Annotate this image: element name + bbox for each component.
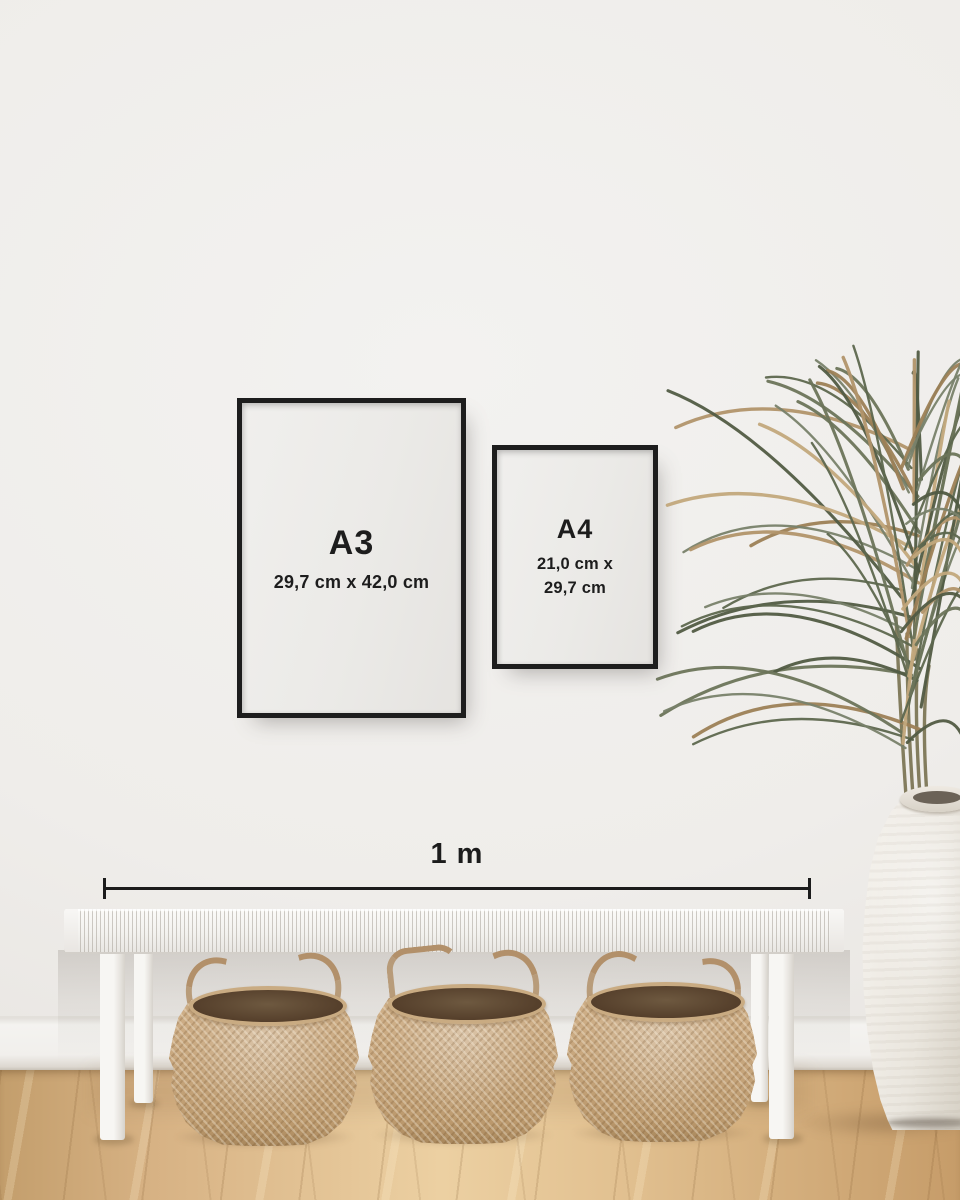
a3-size-label: A3 xyxy=(329,524,374,563)
bench-leg-front-right xyxy=(769,950,794,1139)
basket-rim xyxy=(189,986,347,1026)
ruler-line xyxy=(104,887,810,890)
ruler-label: 1 m xyxy=(357,838,557,871)
vase-opening xyxy=(913,791,960,804)
basket-rim xyxy=(388,984,546,1024)
poster-frame-a3-mat: A3 29,7 cm x 42,0 cm xyxy=(242,403,461,713)
ruler-endcap-right xyxy=(808,878,811,899)
palm-plant xyxy=(600,318,960,818)
seagrass-basket-left xyxy=(164,948,364,1144)
vase-body xyxy=(860,798,960,1130)
a3-dimensions-label: 29,7 cm x 42,0 cm xyxy=(274,572,430,593)
poster-frame-a3: A3 29,7 cm x 42,0 cm xyxy=(237,398,466,718)
size-guide-room-scene: A3 29,7 cm x 42,0 cm A4 21,0 cm x 29,7 c… xyxy=(0,0,960,1200)
palm-fronds xyxy=(657,346,960,796)
seagrass-basket-right xyxy=(562,944,762,1140)
bench-leg-front-left xyxy=(100,950,125,1140)
a4-dimensions-line2: 29,7 cm xyxy=(544,579,606,597)
ruler-endcap-left xyxy=(103,878,106,899)
white-vase xyxy=(860,786,960,1130)
bench-leg-back-left xyxy=(134,950,153,1103)
seagrass-basket-middle xyxy=(363,946,563,1142)
basket-rim xyxy=(587,982,745,1022)
a4-size-label: A4 xyxy=(557,514,594,545)
